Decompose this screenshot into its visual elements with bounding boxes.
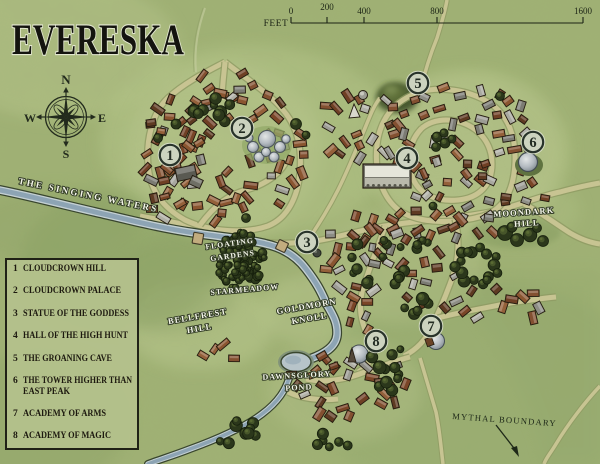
svg-text:8: 8	[372, 334, 379, 350]
svg-text:1: 1	[13, 264, 18, 274]
svg-text:N: N	[61, 72, 71, 87]
svg-text:HALL OF THE HIGH HUNT: HALL OF THE HIGH HUNT	[23, 331, 129, 341]
svg-text:4: 4	[13, 331, 18, 341]
svg-text:1: 1	[166, 148, 173, 164]
svg-text:5: 5	[414, 76, 421, 92]
svg-text:2: 2	[238, 121, 245, 137]
svg-text:EVERESKA: EVERESKA	[12, 17, 184, 64]
svg-text:3: 3	[13, 309, 18, 319]
svg-text:ACADEMY OF MAGIC: ACADEMY OF MAGIC	[23, 431, 111, 441]
svg-text:FEET: FEET	[264, 19, 289, 29]
svg-text:3: 3	[303, 235, 310, 251]
svg-text:EAST PEAK: EAST PEAK	[23, 387, 71, 397]
svg-text:CLOUDCROWN HILL: CLOUDCROWN HILL	[23, 264, 106, 274]
svg-text:THE TOWER HIGHER THAN: THE TOWER HIGHER THAN	[23, 376, 132, 386]
svg-text:POND: POND	[285, 382, 313, 392]
svg-text:8: 8	[13, 431, 18, 441]
svg-text:6: 6	[13, 376, 18, 386]
svg-text:200: 200	[320, 2, 334, 12]
svg-text:ACADEMY OF ARMS: ACADEMY OF ARMS	[23, 409, 106, 419]
svg-text:STATUE OF THE GODDESS: STATUE OF THE GODDESS	[23, 309, 129, 319]
svg-text:0: 0	[289, 6, 294, 16]
svg-text:6: 6	[529, 135, 536, 151]
svg-text:4: 4	[403, 151, 410, 167]
svg-text:HILL: HILL	[514, 217, 540, 229]
svg-text:7: 7	[427, 319, 434, 335]
svg-text:CLOUDCROWN PALACE: CLOUDCROWN PALACE	[23, 286, 121, 296]
svg-text:W: W	[24, 111, 36, 125]
svg-text:E: E	[98, 111, 106, 125]
svg-text:THE GROANING CAVE: THE GROANING CAVE	[23, 354, 112, 364]
svg-text:7: 7	[13, 409, 18, 419]
svg-text:2: 2	[13, 286, 18, 296]
svg-text:5: 5	[13, 354, 18, 364]
svg-text:1600: 1600	[574, 6, 593, 16]
svg-text:800: 800	[430, 6, 444, 16]
svg-text:400: 400	[357, 6, 371, 16]
svg-text:S: S	[63, 147, 70, 161]
